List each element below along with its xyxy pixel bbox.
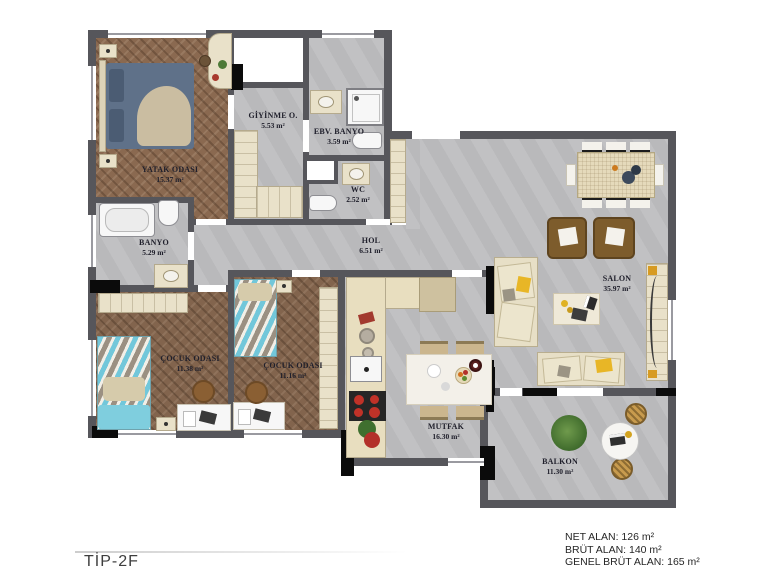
burner [369,407,380,418]
fruit [463,370,468,375]
tv-screen-curve [650,276,664,368]
bed-blanket [137,86,191,146]
bed-blanket [98,405,150,429]
dining-chair [420,406,448,420]
balcony-table [601,422,639,460]
window [118,430,176,438]
laptop [571,308,588,322]
pot [359,328,375,344]
kitchen-sink [350,356,382,382]
brut-alan: BRÜT ALAN: 140 m² [565,544,700,557]
room-area: 11.38 m² [160,364,219,373]
room-label-cocuk-2: ÇOCUK ODASI 11.16 m² [263,361,322,380]
shower [346,88,384,126]
room-label-salon: SALON 35.97 m² [603,274,632,293]
decor [648,370,657,378]
room-name: GİYİNME O. [248,111,297,121]
yellow-pillow [516,276,531,293]
dining-chair [606,197,626,208]
column [231,64,243,90]
room-label-yatak-odasi: YATAK ODASI 15.37 m² [142,165,199,184]
nightstand-knob [106,159,110,163]
bathtub [99,203,155,237]
dining-chair [582,197,602,208]
bathroom-sink [154,264,188,288]
room-name: YATAK ODASI [142,165,199,175]
toilet [309,195,337,211]
room-name: WC [346,185,370,195]
kids-bed [97,336,151,430]
dining-chair [654,164,664,186]
ensuite-door-opening [303,120,309,152]
decor [648,266,657,275]
entry-door-leaf [390,139,406,223]
bed-pillow [103,377,145,401]
desk-flowers [212,74,219,81]
entry-door-opening [412,131,460,139]
desk-chair [245,381,268,404]
sink-basin [349,168,364,180]
plate-center [473,363,478,368]
dining-chair [420,341,448,355]
dining-chair [566,164,576,186]
papers [183,411,196,427]
bed-pillow [109,69,124,102]
dining-chair [456,406,484,420]
room-area: 2.52 m² [346,195,370,204]
balcony-slider-opening [557,388,603,396]
balcony-chair [611,458,633,480]
room-area: 5.53 m² [248,121,297,130]
room-name: ÇOCUK ODASI [263,361,322,371]
kids-desk [177,404,231,431]
plate [441,382,450,391]
dining-chair [630,197,650,208]
room-label-ebv-banyo: EBV. BANYO 3.59 m² [314,127,364,146]
book [609,433,625,446]
room-area: 16.30 m² [428,432,464,441]
window [88,340,96,416]
window [108,30,206,38]
sink-basin [318,96,334,108]
column [656,388,676,396]
room-name: EBV. BANYO [314,127,364,137]
window [448,458,484,466]
armchair-pillow [605,227,625,246]
window [668,300,676,360]
armchair [593,217,635,259]
room-area: 5.29 m² [139,248,169,257]
room-name: BALKON [542,457,578,467]
shaft-void [234,38,303,82]
room-area: 15.37 m² [142,175,199,184]
papers [238,409,251,425]
kitchen-cabinet [419,277,456,312]
room-name: HOL [359,236,383,246]
desk-stool [199,55,211,67]
room-label-cocuk-1: ÇOCUK ODASI 11.38 m² [160,354,219,373]
bed-pillow [109,109,124,142]
net-alan: NET ALAN: 126 m² [565,531,700,544]
plate [469,359,482,372]
balcony-chair [625,403,647,425]
dining-chair [456,341,484,355]
master-bed [99,60,196,152]
ensuite-sink [310,90,342,114]
armchair [547,217,587,259]
decor [561,300,568,307]
room-name: ÇOCUK ODASI [160,354,219,364]
faucet [364,367,369,372]
armchair-pillow [558,227,578,247]
column [486,266,494,314]
room-label-balkon: BALKON 11.30 m² [542,457,578,476]
room-label-mutfak: MUTFAK 16.30 m² [428,422,464,441]
dressing-door-opening [228,95,234,129]
kids-desk [233,402,285,430]
wardrobe [98,293,188,313]
burner [354,395,364,405]
floor-plan-page: YATAK ODASI 15.37 m² GİYİNME O. 5.53 m² … [0,0,768,576]
room-area: 11.30 m² [542,467,578,476]
window [88,215,96,267]
room-area: 3.59 m² [314,137,364,146]
table-decor [612,165,618,171]
sink-basin [163,270,179,282]
column [90,280,120,293]
gray-pillow [502,288,516,302]
wc-sink [342,163,370,185]
bathtub-basin [105,208,149,232]
room-name: MUTFAK [428,422,464,432]
wall-dressing-top [234,82,304,88]
plant [551,415,587,451]
room-area: 35.97 m² [603,284,632,293]
plan-type-title: TİP-2F [84,553,139,571]
yellow-pillow [595,358,613,373]
room-label-banyo: BANYO 5.29 m² [139,238,169,257]
desk-plant [218,60,227,69]
bedroom-door-opening [196,219,226,225]
toilet [158,200,179,226]
bed-pillow [238,283,272,301]
sofa [537,352,625,386]
laptop [199,410,217,425]
room-label-wc: WC 2.52 m² [346,185,370,204]
bathroom-door-opening [188,232,194,260]
room-label-giyinme: GİYİNME O. 5.53 m² [248,111,297,130]
sofa-cushion [497,302,536,342]
decor [625,431,632,438]
desk-chair [192,380,215,403]
shower-drain [354,96,359,101]
wall-balcony-bottom [480,500,676,508]
burner [354,408,363,417]
window [244,430,302,438]
gray-pillow [557,365,571,378]
fruit [462,376,467,381]
wc-door-opening [366,219,390,225]
coffee-table [553,293,600,325]
dining-table [577,152,655,198]
laptop [253,408,271,423]
sofa [494,257,538,347]
kitchen-door-opening [452,270,482,277]
room-name: SALON [603,274,632,284]
stove [349,391,386,421]
wall-kitchen-left [338,277,345,438]
room-area: 6.51 m² [359,246,383,255]
genel-brut-alan: GENEL BRÜT ALAN: 165 m² [565,556,700,569]
wardrobe [319,287,338,429]
window [322,30,374,38]
area-summary: NET ALAN: 126 m² BRÜT ALAN: 140 m² GENEL… [565,531,700,569]
room-label-hol: HOL 6.51 m² [359,236,383,255]
room-area: 11.16 m² [263,371,322,380]
burner [370,395,379,404]
book [583,296,597,311]
kitchen-table [406,354,492,405]
nightstand-knob [164,422,168,426]
wc-shaft-void [307,161,338,184]
kids1-door-opening [198,285,226,292]
bed-headboard [99,60,106,152]
wall-kids2-top [228,270,344,277]
flowers [364,432,380,448]
nightstand-knob [106,49,110,53]
room-name: BANYO [139,238,169,248]
kids2-door-opening [292,270,320,277]
nightstand-knob [282,284,286,288]
plate [427,364,441,378]
column [523,388,557,396]
kids-bed [234,279,277,357]
wardrobe [256,186,303,218]
wardrobe [234,130,258,218]
balcony-slider-opening [500,388,522,396]
window [88,66,96,140]
table-decor [631,165,641,175]
